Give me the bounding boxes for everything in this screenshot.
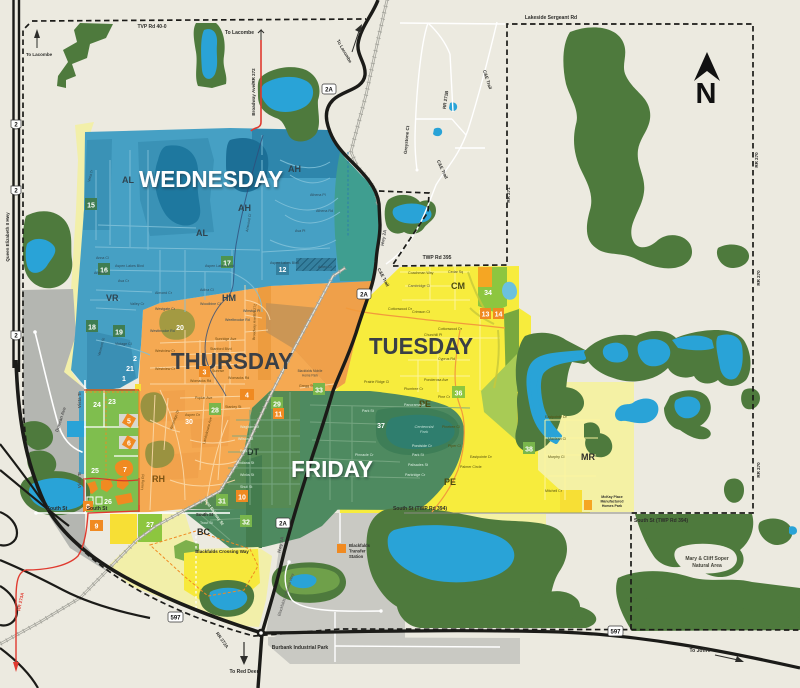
svg-text:Wilson St: Wilson St [238,437,253,441]
svg-text:Pinnacle Cr: Pinnacle Cr [355,453,374,457]
svg-text:BC: BC [197,527,210,537]
svg-text:36: 36 [455,391,463,398]
svg-text:CM: CM [451,281,465,291]
svg-text:Anna Cl: Anna Cl [96,256,109,260]
svg-text:Aspen Lakes Blvd: Aspen Lakes Blvd [270,261,299,265]
svg-text:Pinetree Cl: Pinetree Cl [442,425,460,429]
svg-text:Ponderosa Ave: Ponderosa Ave [424,378,448,382]
svg-text:RR 270: RR 270 [756,270,761,286]
svg-text:AH: AH [238,203,251,213]
svg-text:Prairie Ridge Cl: Prairie Ridge Cl [364,380,389,384]
svg-text:Westview Cr: Westview Cr [155,349,176,353]
svg-text:Silver Dr: Silver Dr [218,359,233,363]
svg-text:South St: South St [47,506,68,512]
svg-text:Park St: Park St [240,449,252,453]
svg-text:2A: 2A [360,293,368,299]
svg-text:Waghorn St: Waghorn St [240,425,259,429]
svg-text:38: 38 [525,447,533,454]
svg-text:597: 597 [170,616,181,622]
svg-text:13: 13 [482,312,490,319]
svg-text:Palmer Circle: Palmer Circle [460,465,482,469]
svg-text:Panorama Dr: Panorama Dr [404,403,426,407]
svg-text:AL: AL [122,175,134,185]
svg-text:Murphy Cl: Murphy Cl [548,455,565,459]
svg-text:FRIDAY: FRIDAY [291,456,373,482]
svg-text:Broadway Ave/RR 272: Broadway Ave/RR 272 [251,68,256,116]
svg-text:HM: HM [222,293,236,303]
svg-text:Valley Cr: Valley Cr [130,302,145,306]
svg-text:Gregg St: Gregg St [299,384,313,388]
svg-text:29: 29 [273,402,281,409]
svg-text:Adina Cl: Adina Cl [200,288,214,292]
svg-text:Coachman Way: Coachman Way [408,271,434,275]
svg-text:2: 2 [133,356,137,363]
svg-text:To Lacombe: To Lacombe [225,30,254,36]
svg-text:RH: RH [152,474,165,484]
svg-text:12: 12 [279,267,287,274]
svg-text:TWP Rd 395: TWP Rd 395 [423,255,452,261]
svg-text:9: 9 [95,524,99,531]
svg-text:Shull St: Shull St [240,485,252,489]
svg-text:Blackfalds Crossing Way: Blackfalds Crossing Way [195,549,249,554]
svg-text:Manufactured: Manufactured [601,500,624,504]
svg-text:6: 6 [127,441,131,448]
svg-text:Mitchell Cr: Mitchell Cr [545,489,563,493]
svg-text:Pondside Cr: Pondside Cr [412,444,433,448]
svg-text:Stanley St: Stanley St [225,405,241,409]
svg-text:Westgate Cr: Westgate Cr [155,307,176,311]
svg-text:21: 21 [126,366,134,373]
svg-text:To Red Deer: To Red Deer [229,669,258,675]
svg-text:Athena Pl: Athena Pl [310,193,326,197]
svg-text:Eastpointe Dr: Eastpointe Dr [470,455,493,459]
svg-text:RR 270: RR 270 [754,152,759,168]
svg-text:Winston Pl: Winston Pl [243,309,260,313]
svg-text:VR: VR [106,293,119,303]
svg-text:WEDNESDAY: WEDNESDAY [139,166,283,192]
svg-text:Parkridge Cr: Parkridge Cr [405,473,426,477]
svg-text:19: 19 [115,330,123,337]
svg-text:5: 5 [127,419,131,426]
svg-text:31: 31 [218,499,226,506]
svg-text:26: 26 [104,499,112,506]
svg-text:PE: PE [444,477,456,487]
svg-text:Maclean Cl: Maclean Cl [548,437,566,441]
svg-text:Crimson Ct: Crimson Ct [412,310,430,314]
svg-text:Stanford Blvd: Stanford Blvd [210,347,232,351]
svg-text:Westview Cr: Westview Cr [155,367,176,371]
svg-text:TVP Rd 40-0: TVP Rd 40-0 [137,24,166,30]
svg-text:AH: AH [288,164,301,174]
svg-text:Transfer: Transfer [349,549,366,554]
svg-text:AL: AL [196,228,208,238]
svg-text:Ava Cr: Ava Cr [118,279,130,283]
svg-text:25: 25 [91,468,99,475]
svg-text:South St: South St [196,512,214,517]
svg-text:15: 15 [87,203,95,210]
svg-text:24: 24 [93,402,101,409]
svg-text:Park St: Park St [362,409,374,413]
svg-text:Ava Pl: Ava Pl [295,229,306,233]
svg-text:Womacks Rd: Womacks Rd [190,379,211,383]
svg-text:N: N [696,78,717,110]
svg-text:23: 23 [108,399,116,406]
svg-text:Mary & Cliff Soper: Mary & Cliff Soper [685,556,728,562]
svg-text:Plumtree Cr: Plumtree Cr [404,387,424,391]
svg-text:30: 30 [185,419,193,426]
svg-text:2A: 2A [279,522,287,528]
svg-text:Athena Rd: Athena Rd [316,209,333,213]
svg-text:Piper Cl: Piper Cl [448,444,461,448]
svg-text:1: 1 [122,376,126,383]
svg-text:THURSDAY: THURSDAY [171,348,293,374]
svg-text:Pine Cr: Pine Cr [438,395,451,399]
svg-text:4: 4 [245,393,249,400]
svg-text:Winks St: Winks St [240,473,254,477]
svg-text:Vintage Cl: Vintage Cl [115,342,132,346]
svg-text:Sunridge Ave: Sunridge Ave [215,337,236,341]
svg-text:Palisades St: Palisades St [408,463,428,467]
svg-text:34: 34 [484,290,492,297]
svg-text:Lakeside Sergeant Rd: Lakeside Sergeant Rd [525,15,577,21]
svg-text:Eastpointe Dr: Eastpointe Dr [545,415,568,419]
svg-text:3: 3 [203,370,207,377]
svg-text:33: 33 [315,388,323,395]
svg-text:RR 270: RR 270 [756,462,761,478]
svg-text:Natural Area: Natural Area [692,563,722,569]
svg-text:Cyprus Rd: Cyprus Rd [438,357,455,361]
svg-text:27: 27 [146,522,154,529]
svg-text:Park St: Park St [412,453,424,457]
svg-text:14: 14 [495,312,503,319]
svg-text:Aspen Dr: Aspen Dr [185,413,201,417]
svg-text:Womacks Rd: Womacks Rd [228,376,249,380]
svg-text:RR 271: RR 271 [506,187,511,203]
svg-text:MR: MR [581,452,595,462]
svg-text:2A: 2A [325,88,333,94]
svg-text:South St (TWP Rd 394): South St (TWP Rd 394) [634,518,688,524]
svg-text:Aspen Lakes Blvd: Aspen Lakes Blvd [115,264,144,268]
svg-text:Blackfalds: Blackfalds [349,543,371,548]
svg-text:Station: Station [349,554,364,559]
svg-text:Cambridge Cl: Cambridge Cl [408,284,430,288]
svg-text:10: 10 [238,495,246,502]
svg-text:Cottonwood Dr: Cottonwood Dr [438,327,463,331]
svg-text:Sunrise: Sunrise [212,369,224,373]
svg-text:20: 20 [176,325,184,332]
svg-text:Burbank Industrial Park: Burbank Industrial Park [272,645,329,651]
svg-text:Arlen Cl: Arlen Cl [94,271,107,275]
svg-text:To Lacombe: To Lacombe [26,52,53,57]
svg-text:Cottonwood Dr: Cottonwood Dr [388,307,413,311]
svg-text:Vista Tr: Vista Tr [77,392,82,408]
svg-text:Homes Park: Homes Park [602,504,622,508]
svg-text:Park: Park [420,429,429,434]
svg-text:32: 32 [242,520,250,527]
svg-text:Cedar Sq: Cedar Sq [448,270,463,274]
svg-text:Home Park: Home Park [302,374,318,378]
svg-text:Aspen Lakes Blvd: Aspen Lakes Blvd [205,264,234,268]
svg-text:Churchill Pl: Churchill Pl [424,333,442,337]
svg-text:11: 11 [275,412,283,419]
svg-text:Aztec Cr: Aztec Cr [318,265,333,269]
svg-text:Woodbine Cl: Woodbine Cl [200,302,221,306]
svg-text:Queen Elizabeth II Hwy: Queen Elizabeth II Hwy [5,212,10,262]
svg-text:TUESDAY: TUESDAY [369,333,473,359]
svg-text:Poplar Ave: Poplar Ave [195,396,212,400]
svg-text:37: 37 [377,423,385,430]
svg-text:Vista Tr: Vista Tr [77,472,82,488]
svg-text:South St: South St [87,506,108,512]
svg-text:Almond Cr: Almond Cr [155,291,173,295]
svg-text:Westbrooke Rd: Westbrooke Rd [150,329,175,333]
svg-text:To Joffre: To Joffre [689,648,710,654]
svg-text:7: 7 [123,467,127,474]
svg-text:Indiana St: Indiana St [238,461,254,465]
svg-text:Weelbrooke Rd: Weelbrooke Rd [225,318,250,322]
svg-text:McKay Place: McKay Place [601,495,622,499]
svg-text:Trout St: Trout St [200,521,213,525]
svg-text:18: 18 [88,325,96,332]
svg-text:South St (TWP Rd 394): South St (TWP Rd 394) [393,506,447,512]
svg-text:597: 597 [610,630,621,636]
svg-text:Blackfalds Mobile: Blackfalds Mobile [298,369,323,373]
svg-text:28: 28 [211,408,219,415]
